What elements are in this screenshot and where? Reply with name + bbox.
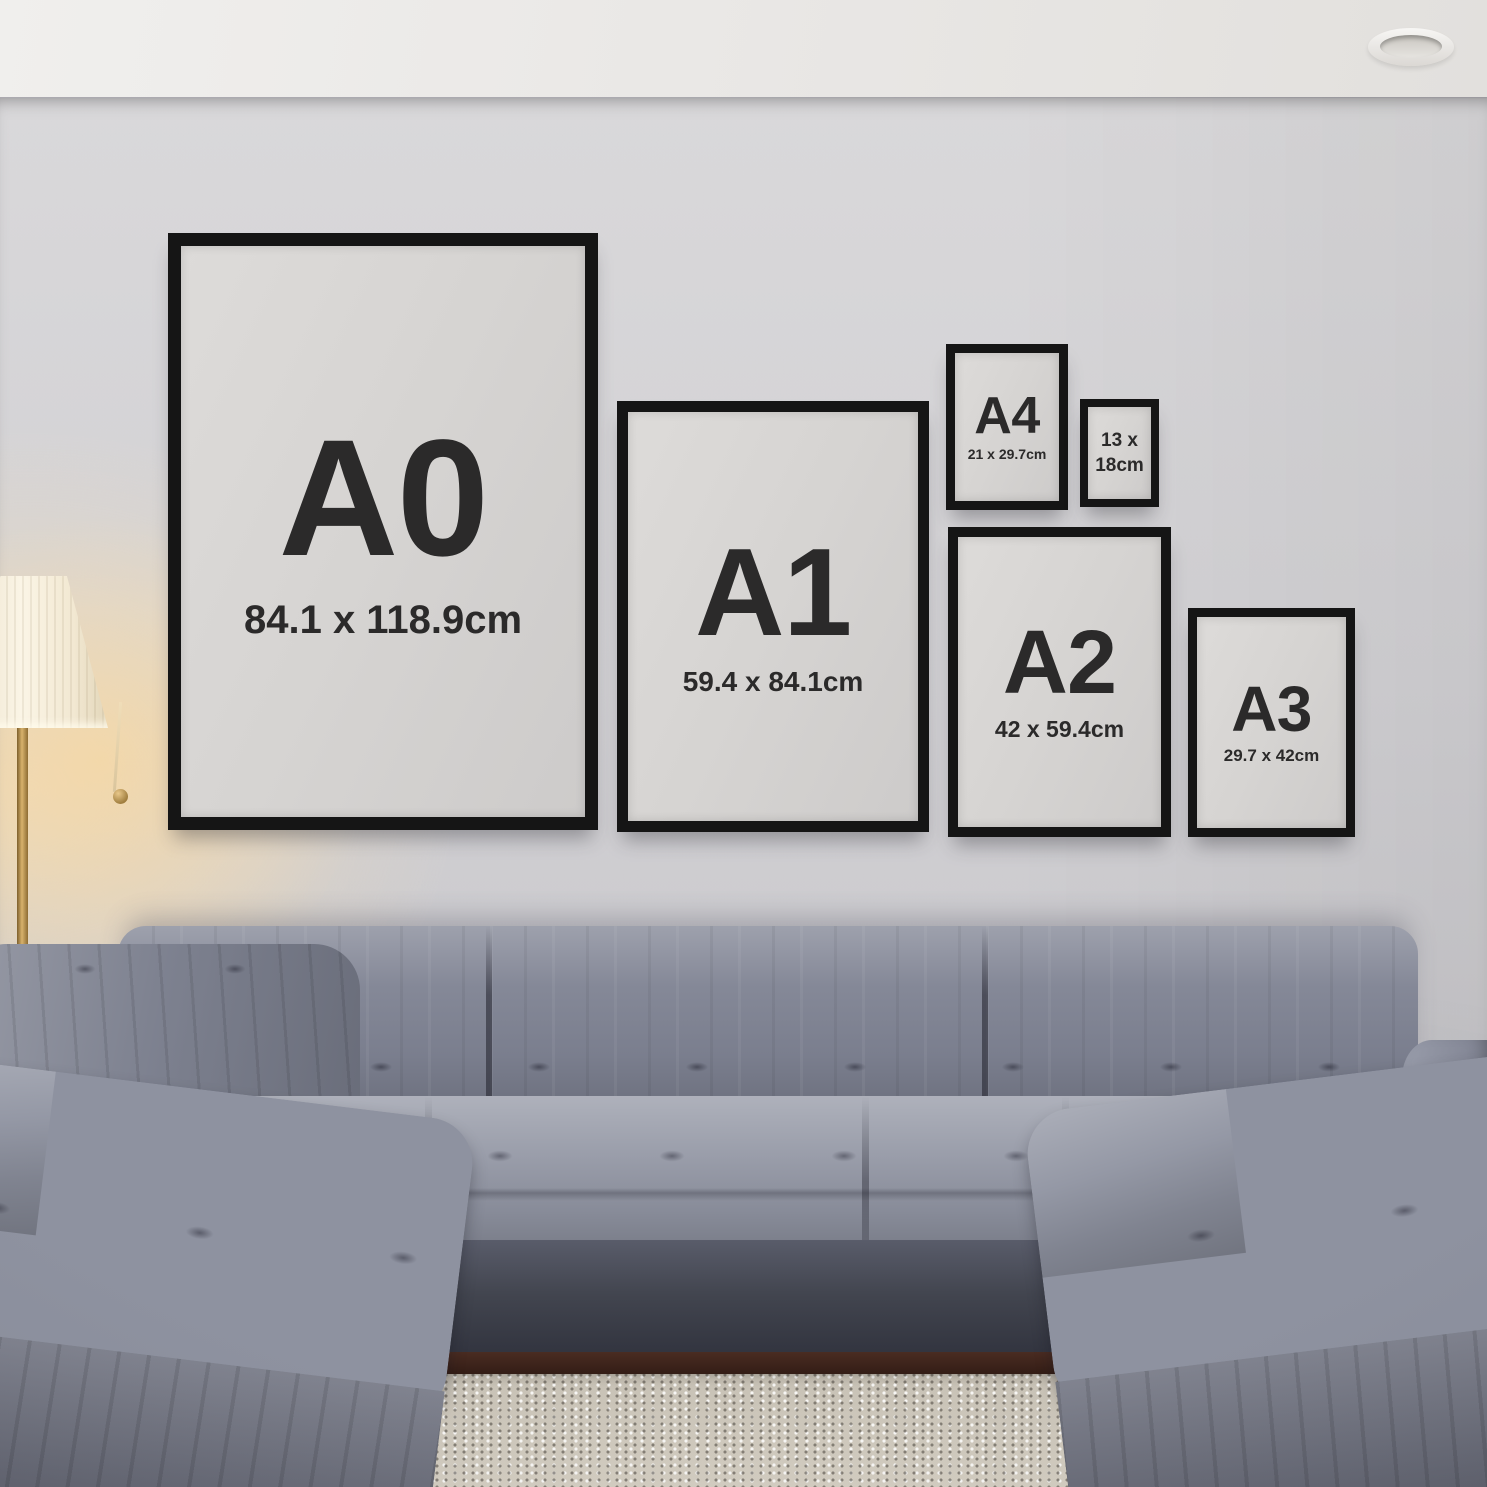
frame-a0: A0 84.1 x 118.9cm bbox=[168, 233, 598, 830]
ceiling bbox=[0, 0, 1487, 98]
sofa-wood-base bbox=[336, 1352, 1172, 1374]
lamp-chain-ball bbox=[113, 789, 128, 804]
frame-mat: A1 59.4 x 84.1cm bbox=[628, 412, 918, 821]
size-dimensions: 42 x 59.4cm bbox=[995, 716, 1124, 743]
frame-a4: A4 21 x 29.7cm bbox=[946, 344, 1068, 510]
size-dimensions: 29.7 x 42cm bbox=[1224, 746, 1319, 766]
frame-mat: A0 84.1 x 118.9cm bbox=[181, 246, 585, 817]
size-dimensions: 59.4 x 84.1cm bbox=[683, 666, 864, 698]
living-room-scene: A0 84.1 x 118.9cm A1 59.4 x 84.1cm A4 21… bbox=[0, 0, 1487, 1487]
size-label: A1 bbox=[695, 535, 851, 653]
frame-mat: A4 21 x 29.7cm bbox=[955, 353, 1059, 501]
frame-a1: A1 59.4 x 84.1cm bbox=[617, 401, 929, 832]
size-dimensions-line1: 13 x bbox=[1101, 428, 1138, 453]
size-label: A3 bbox=[1231, 679, 1312, 740]
size-label: A2 bbox=[1003, 621, 1116, 707]
rug bbox=[318, 1366, 1170, 1487]
size-label: A4 bbox=[974, 392, 1039, 441]
recessed-light-inner bbox=[1380, 35, 1442, 58]
size-dimensions: 84.1 x 118.9cm bbox=[244, 598, 522, 643]
frame-mat: A2 42 x 59.4cm bbox=[958, 537, 1161, 827]
frame-mat: 13 x 18cm bbox=[1088, 407, 1151, 499]
frame-mat: A3 29.7 x 42cm bbox=[1197, 617, 1346, 828]
size-label: A0 bbox=[279, 420, 488, 578]
size-dimensions-line2: 18cm bbox=[1095, 453, 1144, 478]
frame-a3: A3 29.7 x 42cm bbox=[1188, 608, 1355, 837]
frame-a2: A2 42 x 59.4cm bbox=[948, 527, 1171, 837]
recessed-ceiling-light bbox=[1368, 28, 1454, 66]
frame-13x18: 13 x 18cm bbox=[1080, 399, 1159, 507]
size-dimensions: 21 x 29.7cm bbox=[968, 446, 1047, 462]
